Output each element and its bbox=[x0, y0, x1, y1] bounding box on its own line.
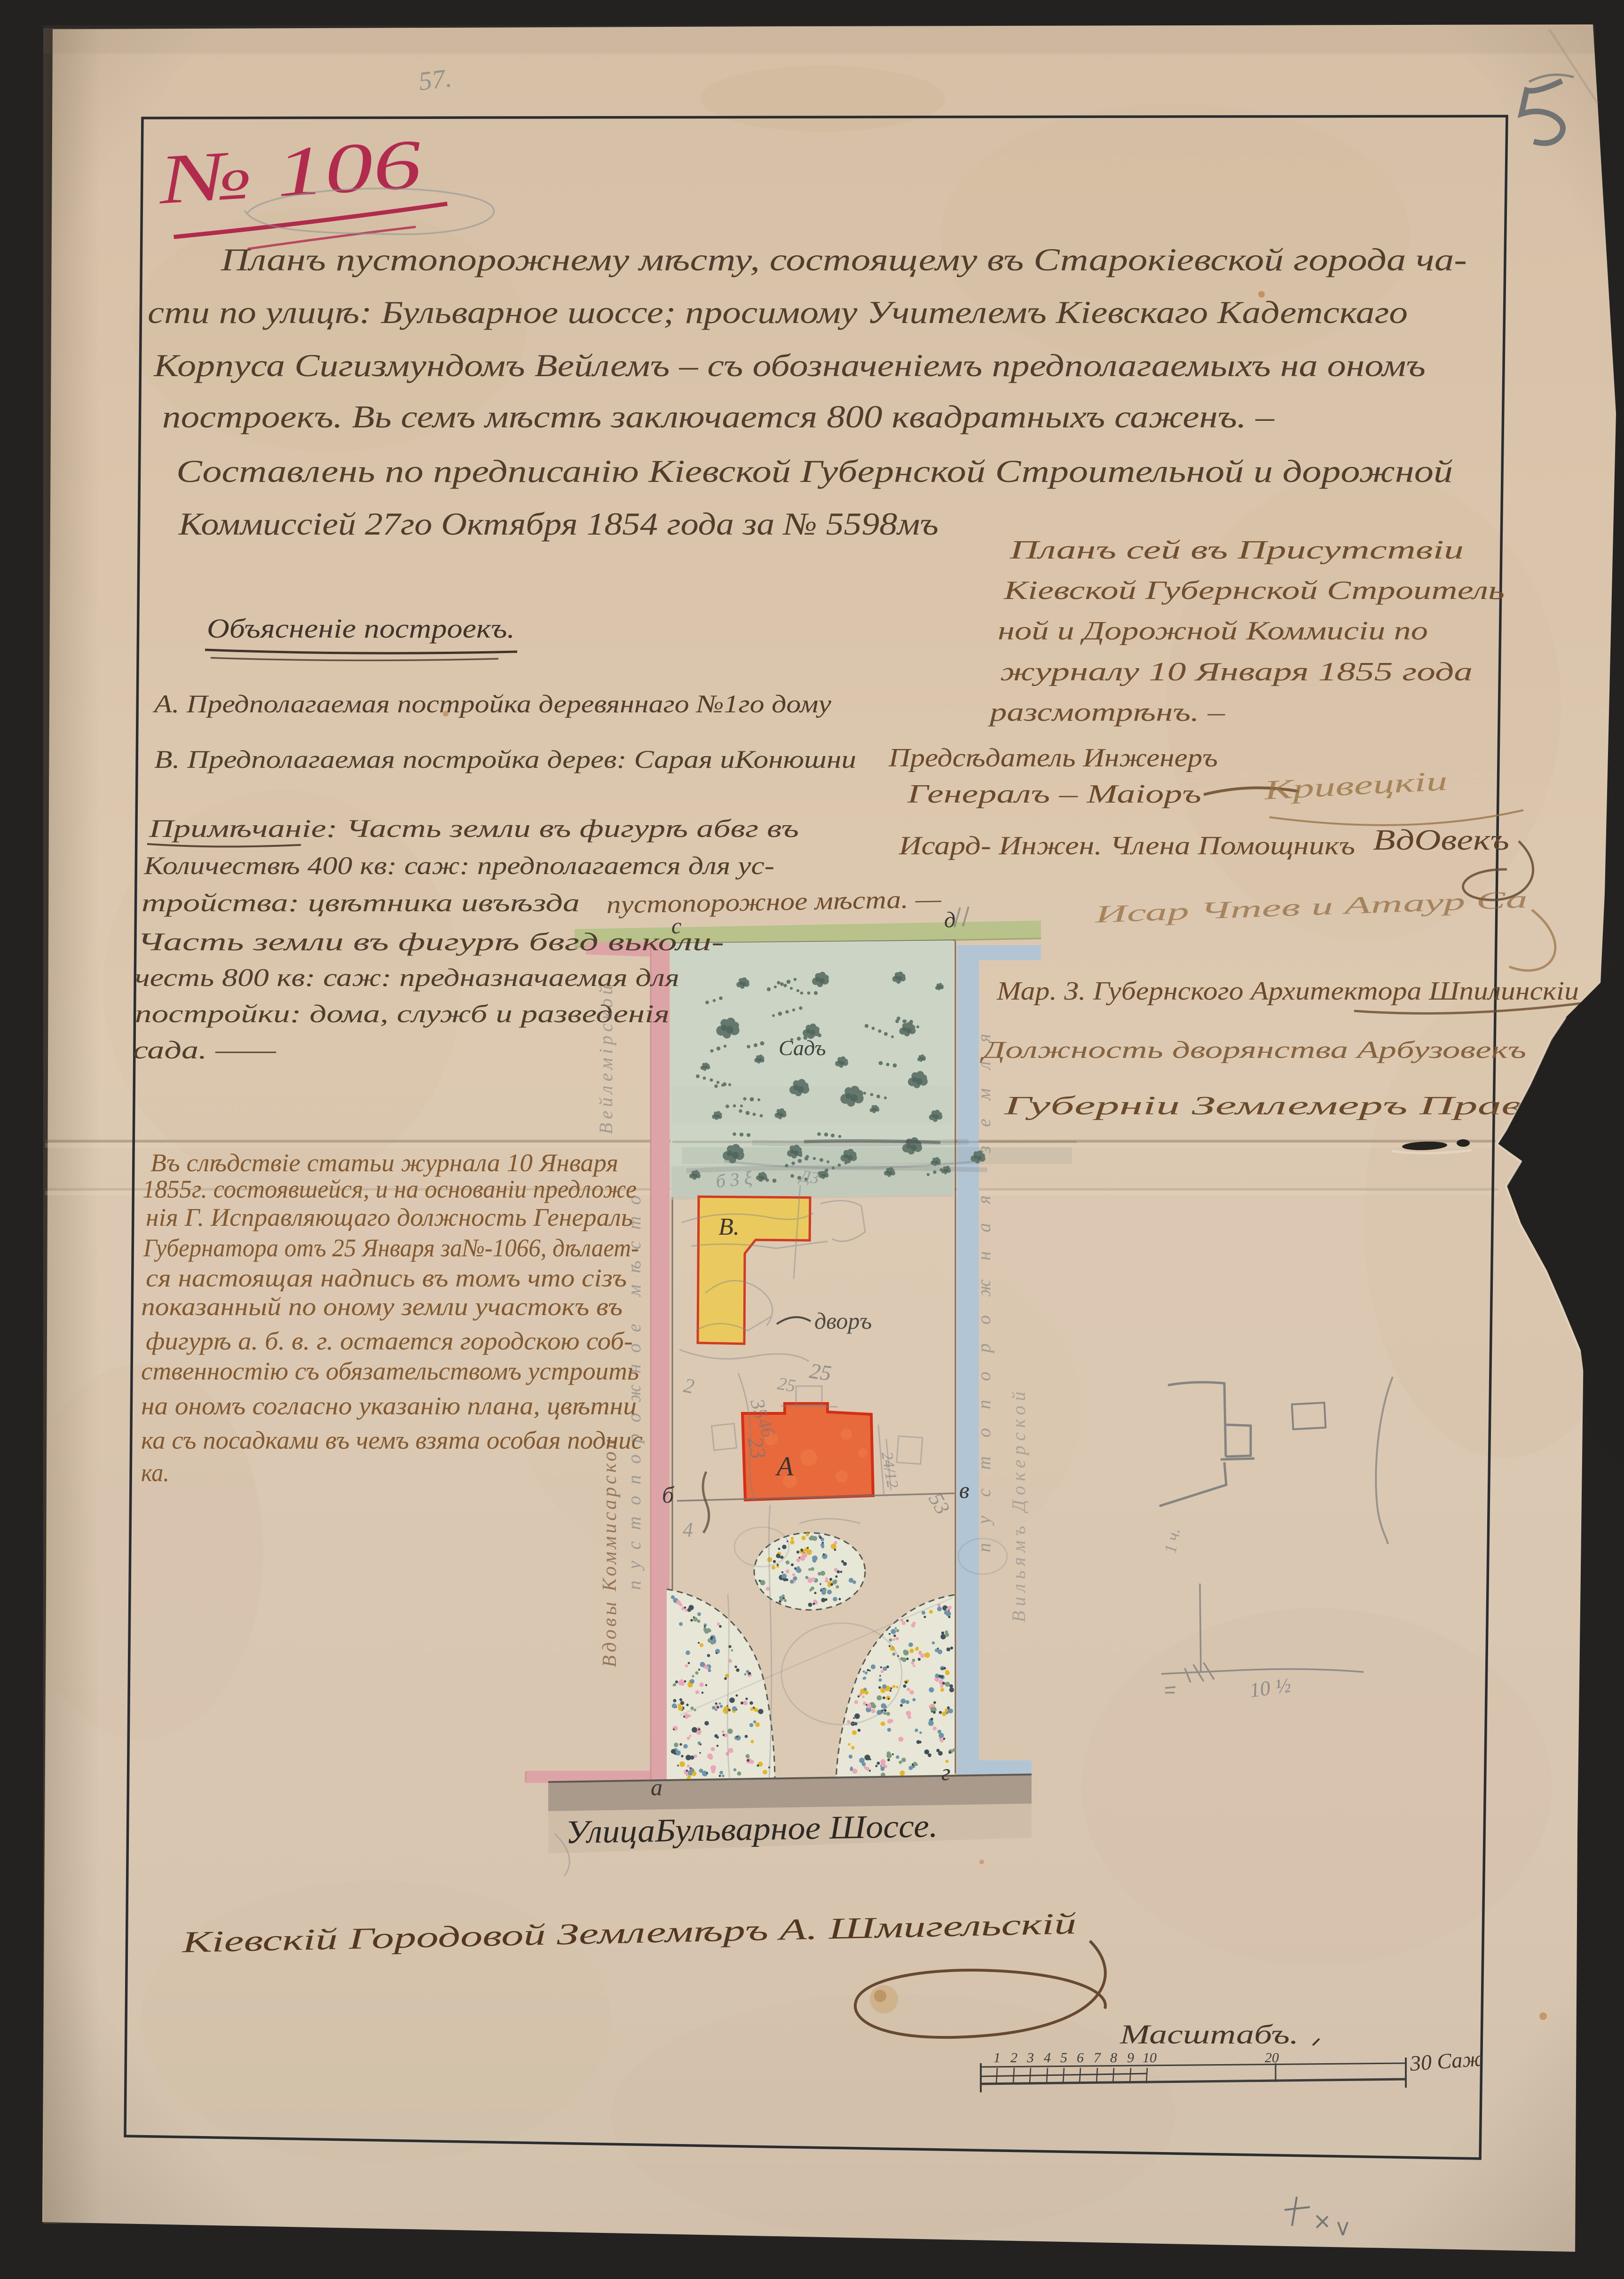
svg-text:10: 10 bbox=[1143, 2050, 1157, 2066]
svg-text:3: 3 bbox=[1026, 2050, 1034, 2066]
svg-text:д: д bbox=[944, 907, 955, 932]
svg-text:Вдовы Коммисарской: Вдовы Коммисарской bbox=[599, 1436, 621, 1667]
svg-text:в: в bbox=[959, 1477, 970, 1503]
svg-text:а: а bbox=[651, 1774, 662, 1800]
svg-text:пустопорожное мѣста. —: пустопорожное мѣста. — bbox=[606, 885, 942, 919]
svg-text:разсмотрѣнъ. –: разсмотрѣнъ. – bbox=[987, 698, 1226, 727]
svg-text:25: 25 bbox=[776, 1374, 797, 1396]
svg-text:дворъ: дворъ bbox=[814, 1308, 872, 1334]
svg-text:на ономъ согласно указанію пла: на ономъ согласно указанію плана, цвѣтни bbox=[141, 1392, 637, 1420]
svg-text:7: 7 bbox=[1094, 2050, 1102, 2066]
svg-text:г: г bbox=[941, 1759, 951, 1785]
svg-text:ВдОвекъ: ВдОвекъ bbox=[1373, 824, 1509, 856]
svg-text:Генералъ – Маіоръ: Генералъ – Маіоръ bbox=[907, 780, 1201, 809]
svg-text:ка.: ка. bbox=[141, 1459, 169, 1487]
svg-text:Составлень по предписанію Кіев: Составлень по предписанію Кіевской Губер… bbox=[176, 453, 1453, 489]
svg-text:Примѣчаніе: Часть земли въ фиг: Примѣчаніе: Часть земли въ фигурѣ абвг в… bbox=[149, 814, 799, 843]
svg-text:5: 5 bbox=[1060, 2050, 1067, 2066]
svg-text:построекъ. Вь семъ мѣстѣ заклю: построекъ. Вь семъ мѣстѣ заключается 800… bbox=[162, 399, 1275, 434]
svg-text:ной и Дорожной Коммисіи по: ной и Дорожной Коммисіи по bbox=[998, 616, 1428, 646]
svg-text:ственностію съ обязательствомъ: ственностію съ обязательствомъ устроить bbox=[141, 1357, 639, 1385]
svg-text:Количествѣ 400 кв: саж: предпо: Количествѣ 400 кв: саж: предполагается д… bbox=[143, 852, 774, 880]
svg-text:В. Предполагаемая постройка д: В. Предполагаемая постройка дерев: Сарая… bbox=[154, 745, 856, 773]
svg-text:фигурѣ а. б. в. г. остается го: фигурѣ а. б. в. г. остается городскою со… bbox=[146, 1327, 633, 1355]
svg-text:Губерніи Землемеръ Права: Губерніи Землемеръ Права bbox=[1003, 1091, 1545, 1120]
svg-text:№ 106: № 106 bbox=[155, 125, 424, 219]
svg-text:Въ слѣдствіе статьи журнала 10: Въ слѣдствіе статьи журнала 10 Января bbox=[150, 1149, 618, 1177]
svg-text:А. Предполагаемая постройка д: А. Предполагаемая постройка деревяннаго … bbox=[153, 690, 831, 718]
svg-text:В.: В. bbox=[718, 1214, 740, 1240]
svg-text:6: 6 bbox=[1077, 2050, 1084, 2066]
svg-text:Объясненіе построекъ.: Объясненіе построекъ. bbox=[207, 613, 515, 644]
svg-text:20: 20 bbox=[1265, 2050, 1279, 2066]
svg-text:9: 9 bbox=[1127, 2050, 1134, 2066]
svg-text:Садъ: Садъ bbox=[779, 1036, 826, 1060]
svg-text:57.: 57. bbox=[417, 63, 453, 96]
svg-text:Мар. З. Губернского Архитектор: Мар. З. Губернского Архитектора Шпилинск… bbox=[996, 977, 1579, 1006]
svg-text:4: 4 bbox=[683, 1518, 693, 1541]
svg-text:нія Г. Исправляющаго должность: нія Г. Исправляющаго должность Генераль bbox=[146, 1203, 633, 1231]
svg-text:Коммиссіей 27го Октября 1854 г: Коммиссіей 27го Октября 1854 года за № 5… bbox=[178, 506, 938, 542]
svg-text:30 Саж: 30 Саж bbox=[1409, 2046, 1483, 2075]
svg-text:ка съ посадками въ чемъ взята: ка съ посадками въ чемъ взята особая под… bbox=[141, 1426, 643, 1454]
svg-text:1: 1 bbox=[993, 2050, 1001, 2066]
svg-text:А: А bbox=[775, 1451, 794, 1482]
svg-text:пустопорожное мѣсто: пустопорожное мѣсто bbox=[623, 1184, 645, 1590]
svg-text:4: 4 bbox=[1044, 2050, 1051, 2066]
svg-text:постройки: дома, служб и разве: постройки: дома, служб и разведенія bbox=[135, 1000, 670, 1028]
svg-text:ДЗ: ДЗ bbox=[797, 1166, 820, 1188]
svg-text:Масштабъ.: Масштабъ. bbox=[1119, 2019, 1299, 2050]
svg-text:8: 8 bbox=[1110, 2050, 1117, 2066]
svg-text:сада. ——: сада. —— bbox=[133, 1036, 276, 1064]
svg-text:Предсѣдатель Инженеръ: Предсѣдатель Инженеръ bbox=[888, 743, 1218, 773]
svg-text:Губернатора отъ 25 Января за№-: Губернатора отъ 25 Января за№-1066, дѣла… bbox=[143, 1234, 639, 1262]
svg-text:1855г. состоявшейся, и на осно: 1855г. состоявшейся, и на основаніи пред… bbox=[142, 1175, 637, 1203]
svg-text:пустопорожная земля: пустопорожная земля bbox=[973, 1015, 994, 1553]
svg-text:показанный по оному земли учас: показанный по оному земли участокъ въ bbox=[141, 1293, 623, 1321]
svg-text:журналу 10 Января 1855 года: журналу 10 Января 1855 года bbox=[1000, 657, 1473, 686]
svg-text:б 3 ξ: б 3 ξ bbox=[715, 1167, 753, 1192]
svg-text:ся настоящая надпись въ томъ ч: ся настоящая надпись въ томъ что сізъ bbox=[146, 1264, 627, 1292]
svg-text:Вейлемірской: Вейлемірской bbox=[595, 982, 616, 1135]
svg-text:25: 25 bbox=[808, 1358, 833, 1385]
svg-text:Вильямъ Докерской: Вильямъ Докерской bbox=[1008, 1387, 1029, 1623]
svg-text:сти по улицѣ: Бульварное шоссе: сти по улицѣ: Бульварное шоссе; просимом… bbox=[148, 294, 1408, 330]
svg-text:Корпуса Сигизмундомъ Вейлемъ –: Корпуса Сигизмундомъ Вейлемъ – съ обозна… bbox=[153, 347, 1426, 383]
svg-text:Исард- Инжен. Члена Помощникъ: Исард- Инжен. Члена Помощникъ bbox=[899, 831, 1355, 860]
svg-text:б: б bbox=[662, 1482, 675, 1508]
svg-text:Должность дворянства Арбузовек: Должность дворянства Арбузовекъ bbox=[979, 1037, 1526, 1064]
svg-text:УлицаБульварное Шоссе.: УлицаБульварное Шоссе. bbox=[565, 1808, 938, 1851]
svg-text:2: 2 bbox=[1010, 2050, 1017, 2066]
svg-text:Планъ сей въ Присутствіи: Планъ сей въ Присутствіи bbox=[1009, 536, 1464, 565]
svg-text:тройства: цвѣтника ивъѣзда: тройства: цвѣтника ивъѣзда bbox=[142, 889, 580, 917]
svg-text:Кіевской Губернской Строитель: Кіевской Губернской Строитель bbox=[1003, 576, 1505, 605]
svg-text:Планъ пустопорожнему мѣсту, со: Планъ пустопорожнему мѣсту, состоящему в… bbox=[221, 242, 1467, 277]
svg-text:Часть земли въ фигурѣ бвгд вьк: Часть земли въ фигурѣ бвгд вьколи- bbox=[137, 928, 724, 956]
